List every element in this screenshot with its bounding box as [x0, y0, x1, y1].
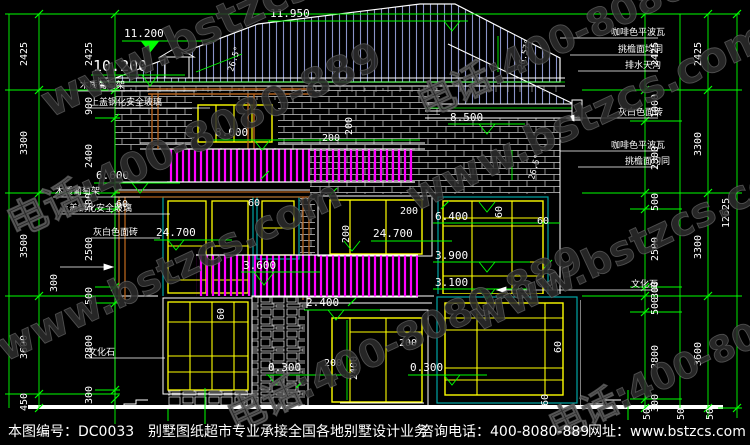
drawing-number: 本图编号：DC0033 [8, 421, 134, 441]
dim-text: 2500 [84, 237, 95, 261]
elevation-text: 3.600 [243, 259, 276, 272]
elevation-text: 2.400 [306, 296, 339, 309]
footer-phone: 咨询电话：400-8080-889 [420, 421, 589, 441]
dim-text: 200 [344, 117, 355, 135]
dim-text: 300 [84, 386, 95, 404]
elevation-drawing: 11.950 11.200 10.200 8.500 8.000 6.600 2… [0, 0, 750, 445]
dim-text: 3300 [19, 131, 30, 155]
dim-text: 450 [19, 393, 30, 411]
elevation-text: 0.300 [410, 361, 443, 374]
dim-text: 60 [540, 394, 551, 406]
dim-text: 200 [341, 225, 352, 243]
dim-text: 200 [322, 133, 340, 144]
note-text: 挑檐面均同 [618, 43, 663, 55]
note-text: 挑檐面均同 [625, 155, 670, 167]
elevation-text: 3.900 [435, 249, 468, 262]
gf-left-opening [160, 296, 255, 396]
footer-slogan: 别墅图纸超市专业承接全国各地别墅设计业务 [148, 421, 428, 441]
note-text: 文化石 [88, 346, 115, 358]
dim-text: 3300 [693, 132, 704, 156]
footer-bar: 本图编号：DC0033 别墅图纸超市专业承接全国各地别墅设计业务 咨询电话：40… [0, 413, 750, 445]
dim-text: 2425 [19, 42, 30, 66]
dim-text: 500 [650, 297, 661, 315]
elevation-text: 6.400 [435, 210, 468, 223]
dim-text: 60 [553, 341, 564, 353]
note-text: 咖啡色平波瓦 [611, 139, 665, 151]
note-text: 文化石 [631, 278, 658, 290]
dim-text: 300 [49, 274, 60, 292]
footer-website: 网址：www.bstzcs.com [588, 421, 746, 441]
cad-elevation-viewer: 11.950 11.200 10.200 8.500 8.000 6.600 2… [0, 0, 750, 445]
elevation-text: 24.700 [373, 227, 413, 240]
note-text: 灰白色面砖 [93, 226, 138, 238]
dim-text: 60 [537, 216, 549, 227]
dim-text: 60 [216, 308, 227, 320]
dim-text: 60 [494, 206, 505, 218]
